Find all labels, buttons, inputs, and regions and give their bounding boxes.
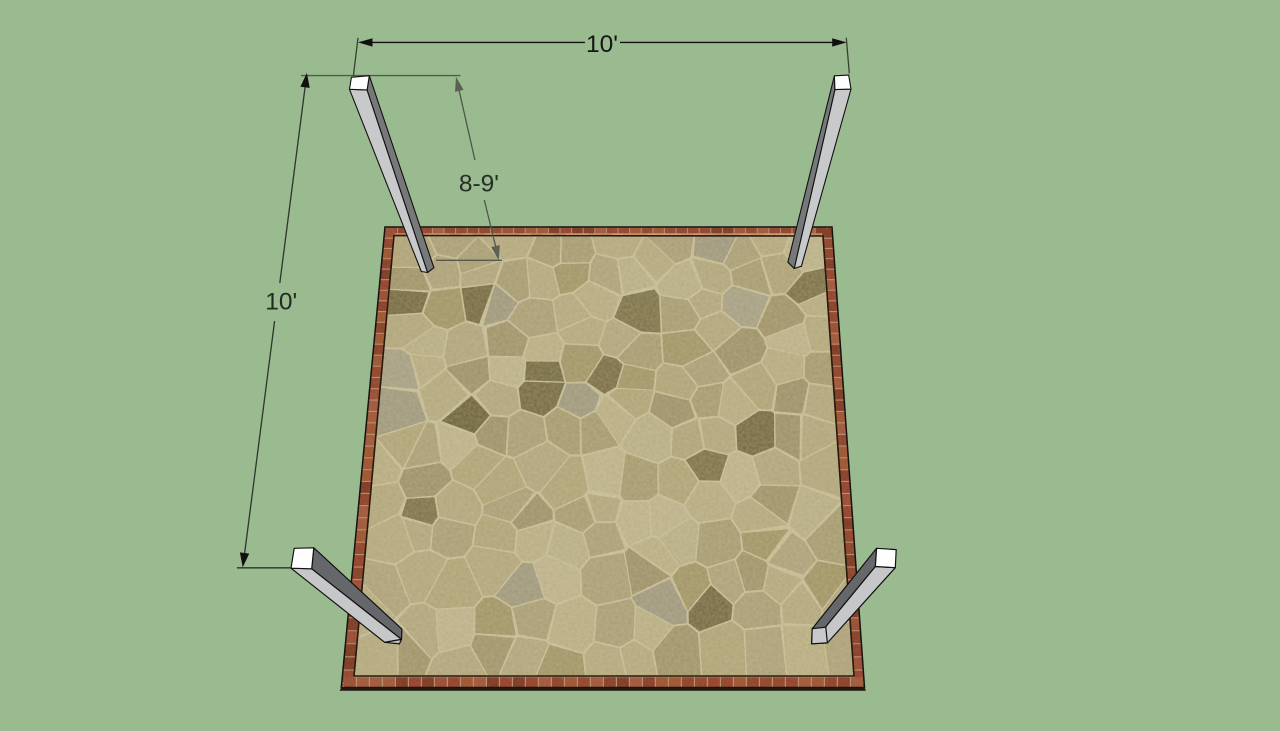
svg-text:10': 10': [586, 31, 618, 58]
svg-text:10': 10': [265, 289, 297, 316]
svg-text:8-9': 8-9': [459, 171, 499, 198]
